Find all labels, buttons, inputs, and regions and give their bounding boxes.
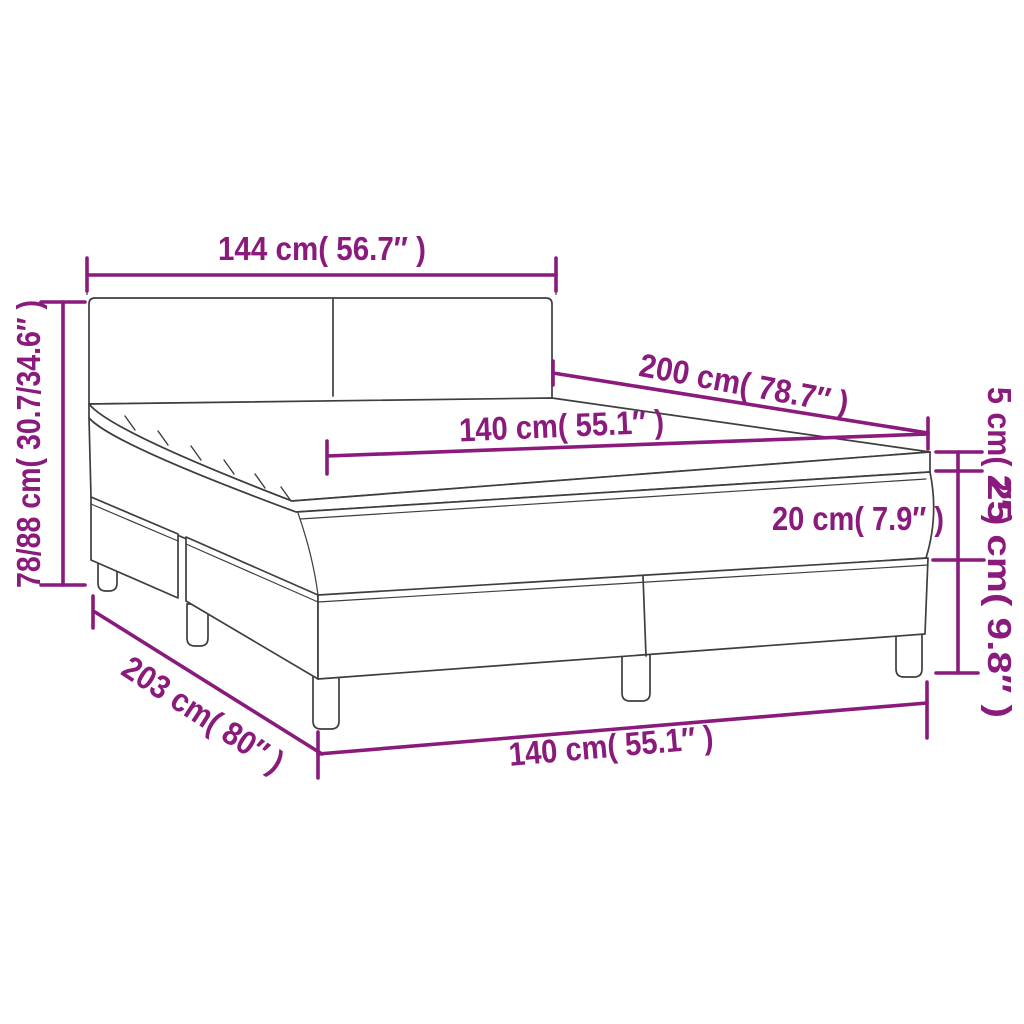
leg-foot-left: [313, 676, 339, 729]
headboard-panel: [89, 298, 552, 404]
label-mattress-length: 200 cm( 78.7″ ): [636, 346, 851, 421]
label-mattress-width-bottom: 140 cm( 55.1″ ): [507, 718, 714, 773]
label-total-height: 78/88 cm( 30.7/34.6″ ): [10, 300, 47, 588]
label-mattress-height: 20 cm( 7.9″ ): [772, 500, 944, 537]
leader-lines: [87, 281, 556, 295]
label-headboard-width: 144 cm( 56.7″ ): [218, 230, 426, 267]
label-base-height: 25 cm( 9.8″ ): [981, 478, 1018, 718]
dim-total-height-line: [41, 302, 85, 585]
dim-right-height-axis: [933, 452, 984, 673]
bed-dimension-diagram: 144 cm( 56.7″ ) 78/88 cm( 30.7/34.6″ ) 2…: [0, 0, 1024, 1024]
leg-foot-middle: [622, 650, 650, 701]
label-bed-length: 203 cm( 80″ ): [116, 648, 291, 780]
diagram-canvas: 144 cm( 56.7″ ) 78/88 cm( 30.7/34.6″ ) 2…: [0, 0, 1024, 1024]
